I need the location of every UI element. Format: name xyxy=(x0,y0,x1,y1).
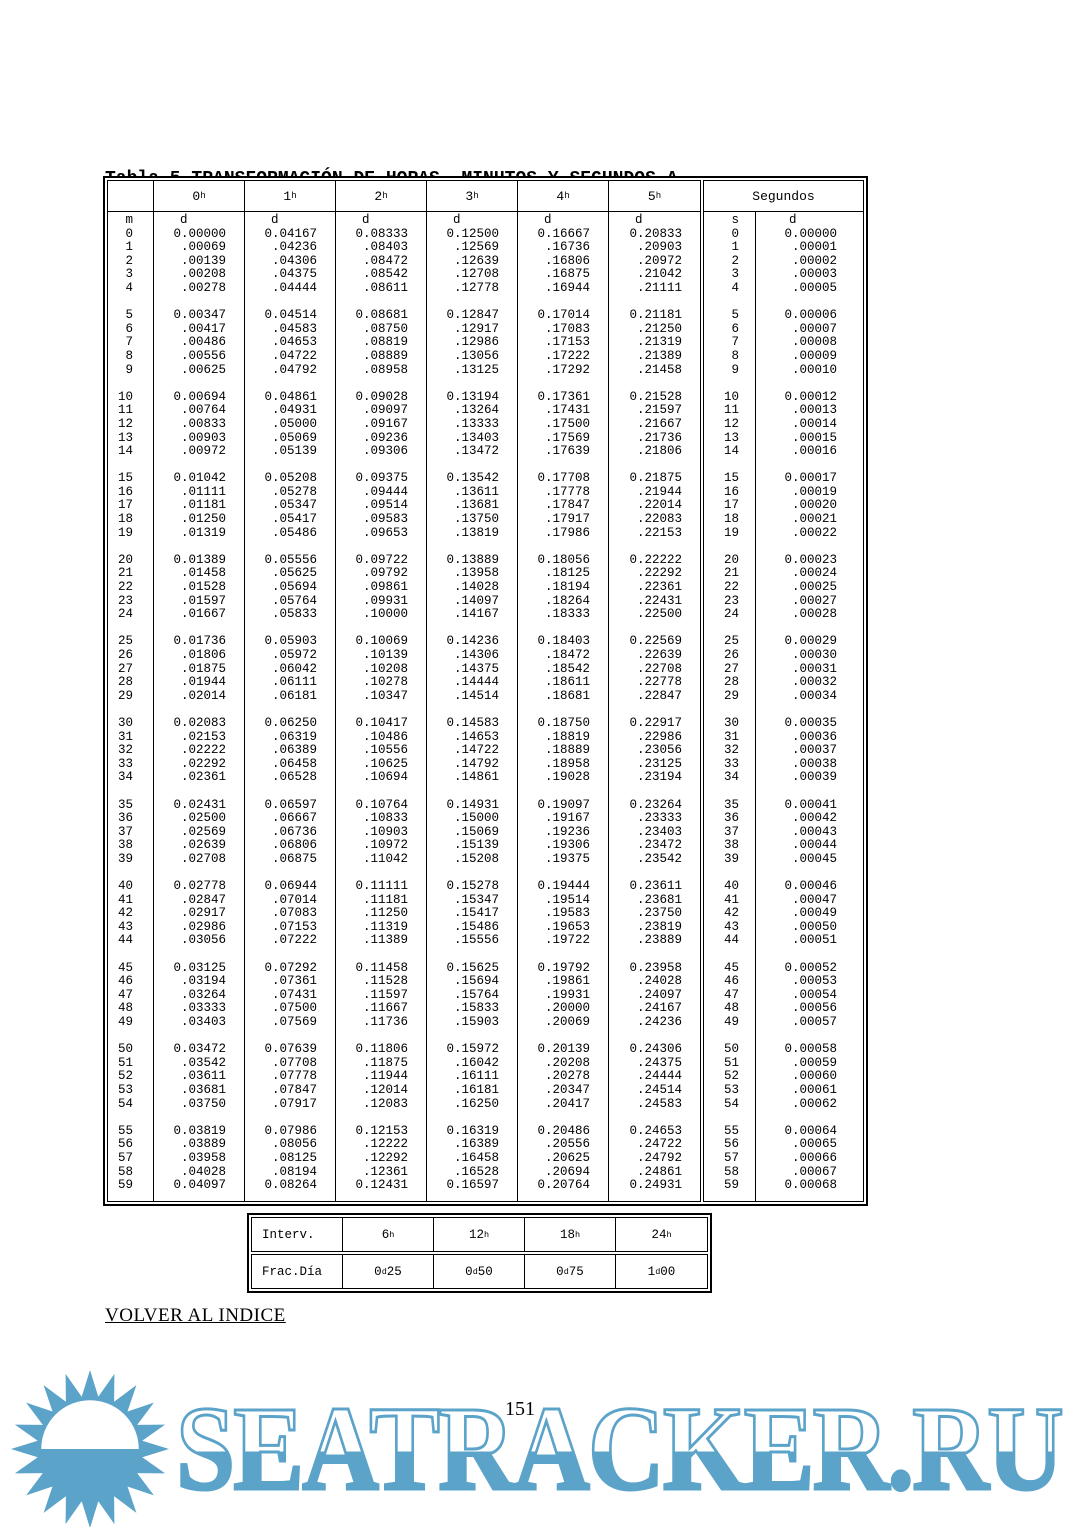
table-cell: .00060 xyxy=(756,1070,837,1084)
table-cell: .00032 xyxy=(756,676,837,690)
table-cell: .17847 xyxy=(518,499,590,513)
table-cell: .05972 xyxy=(245,649,317,663)
table-cell: .21458 xyxy=(609,364,682,378)
row-group: 0.15972.16042.16111.16181.16250 xyxy=(427,1043,499,1111)
row-group: 0.02778.02847.02917.02986.03056 xyxy=(154,880,226,948)
row-group: 5556575859 xyxy=(108,1125,133,1193)
row-group: 0.13194.13264.13333.13403.13472 xyxy=(427,391,499,459)
row-group: 0.14236.14306.14375.14444.14514 xyxy=(427,635,499,703)
table-cell: .18819 xyxy=(518,731,590,745)
table-cell: 29 xyxy=(108,690,133,704)
row-group: 0.18403.18472.18542.18611.18681 xyxy=(518,635,590,703)
table-cell: 0.08333 xyxy=(336,228,408,242)
row-group: 3536373839 xyxy=(704,799,739,867)
table-cell: 0.20833 xyxy=(609,228,682,242)
hour-column-1-subheader: d xyxy=(245,214,317,228)
table-cell: .07917 xyxy=(245,1098,317,1112)
row-group: 0.19444.19514.19583.19653.19722 xyxy=(518,880,590,948)
table-cell: .16389 xyxy=(427,1138,499,1152)
minutes-table: 0h 1h 2h 3h 4h 5h m012345678910111213141… xyxy=(107,180,701,1202)
row-group: 0.03472.03542.03611.03681.03750 xyxy=(154,1043,226,1111)
row-group: 5051525354 xyxy=(108,1043,133,1111)
table-cell: 27 xyxy=(704,663,739,677)
table-cell: .14444 xyxy=(427,676,499,690)
table-cell: 1 xyxy=(108,241,133,255)
table-cell: .07569 xyxy=(245,1016,317,1030)
table-cell: 45 xyxy=(704,962,739,976)
table-cell: .05000 xyxy=(245,418,317,432)
table-cell: .17431 xyxy=(518,404,590,418)
row-group: 0.11806.11875.11944.12014.12083 xyxy=(336,1043,408,1111)
table-cell: 57 xyxy=(704,1152,739,1166)
table-cell: .00031 xyxy=(756,663,837,677)
table-cell: .05139 xyxy=(245,445,317,459)
interval-value: 18h xyxy=(525,1218,616,1251)
table-cell: 4 xyxy=(108,282,133,296)
table-cell: 10 xyxy=(704,391,739,405)
table-cell: 0.01736 xyxy=(154,635,226,649)
table-cell: .01528 xyxy=(154,581,226,595)
row-group: 0.05903.05972.06042.06111.06181 xyxy=(245,635,317,703)
hour-label: 0 xyxy=(192,189,200,204)
table-cell: 53 xyxy=(108,1084,133,1098)
interval-value: 0d50 xyxy=(434,1255,525,1288)
table-cell: .13472 xyxy=(427,445,499,459)
table-cell: .00044 xyxy=(756,839,837,853)
hour-label: 1 xyxy=(283,189,291,204)
interval-value: 12h xyxy=(434,1218,525,1251)
table-cell: .11736 xyxy=(336,1016,408,1030)
table-cell: .08958 xyxy=(336,364,408,378)
table-cell: 0.15278 xyxy=(427,880,499,894)
table-cell: .03681 xyxy=(154,1084,226,1098)
table-cell: .00013 xyxy=(756,404,837,418)
row-group: 0.00041.00042.00043.00044.00045 xyxy=(756,799,837,867)
table-cell: .00208 xyxy=(154,268,226,282)
row-group: 0.24306.24375.24444.24514.24583 xyxy=(609,1043,682,1111)
table-cell: .06875 xyxy=(245,853,317,867)
hour-column-4: d0.16667.16736.16806.16875.169440.17014.… xyxy=(518,212,609,1201)
table-cell: 0.09375 xyxy=(336,472,408,486)
table-cell: 0.11806 xyxy=(336,1043,408,1057)
table-cell: 0.15972 xyxy=(427,1043,499,1057)
table-cell: 23 xyxy=(108,595,133,609)
table-cell: 0.11458 xyxy=(336,962,408,976)
table-cell: .07153 xyxy=(245,921,317,935)
table-cell: 0.00029 xyxy=(756,635,837,649)
row-group: 1516171819 xyxy=(108,472,133,540)
table-cell: .08194 xyxy=(245,1166,317,1180)
hour-label: 2 xyxy=(374,189,382,204)
table-cell: 0.07639 xyxy=(245,1043,317,1057)
table-cell: .21736 xyxy=(609,432,682,446)
row-group: 0.00000.00001.00002.00003.00005 xyxy=(756,228,837,296)
table-cell: .13125 xyxy=(427,364,499,378)
table-cell: .17569 xyxy=(518,432,590,446)
table-cell: 0.13889 xyxy=(427,554,499,568)
table-cell: 0.22917 xyxy=(609,717,682,731)
table-cell: .20347 xyxy=(518,1084,590,1098)
table-cell: .14167 xyxy=(427,608,499,622)
table-cell: .17986 xyxy=(518,527,590,541)
table-cell: 19 xyxy=(704,527,739,541)
table-cell: .21806 xyxy=(609,445,682,459)
row-group: 01234 xyxy=(704,228,739,296)
table-cell: .08819 xyxy=(336,336,408,350)
table-cell: .23056 xyxy=(609,744,682,758)
table-cell: 41 xyxy=(108,894,133,908)
table-cell: .00278 xyxy=(154,282,226,296)
table-cell: 44 xyxy=(704,934,739,948)
interval-value: 24h xyxy=(616,1218,707,1251)
table-cell: .23333 xyxy=(609,812,682,826)
table-cell: 0.21528 xyxy=(609,391,682,405)
interval-table-row: Interv.6h12h18h24h xyxy=(251,1217,708,1252)
table-cell: .00972 xyxy=(154,445,226,459)
table-cell: 28 xyxy=(704,676,739,690)
table-cell: 31 xyxy=(108,731,133,745)
row-group: 0.07292.07361.07431.07500.07569 xyxy=(245,962,317,1030)
table-cell: 56 xyxy=(704,1138,739,1152)
table-cell: .00015 xyxy=(756,432,837,446)
table-cell: .01181 xyxy=(154,499,226,513)
row-group: 0.00029.00030.00031.00032.00034 xyxy=(756,635,837,703)
table-cell: .14861 xyxy=(427,771,499,785)
table-cell: 2 xyxy=(704,255,739,269)
table-cell: 48 xyxy=(704,1002,739,1016)
table-cell: .00039 xyxy=(756,771,837,785)
table-cell: .07222 xyxy=(245,934,317,948)
table-cell: .16181 xyxy=(427,1084,499,1098)
table-cell: .22153 xyxy=(609,527,682,541)
table-cell: .19514 xyxy=(518,894,590,908)
row-group: 0.23958.24028.24097.24167.24236 xyxy=(609,962,682,1030)
table-cell: .12014 xyxy=(336,1084,408,1098)
table-cell: .03542 xyxy=(154,1057,226,1071)
table-cell: .03889 xyxy=(154,1138,226,1152)
table-cell: .13403 xyxy=(427,432,499,446)
table-cell: .00003 xyxy=(756,268,837,282)
table-cell: 0.12153 xyxy=(336,1125,408,1139)
table-cell: .00061 xyxy=(756,1084,837,1098)
table-cell: 0.10764 xyxy=(336,799,408,813)
table-cell: .00002 xyxy=(756,255,837,269)
hour-column-3: d0.12500.12569.12639.12708.127780.12847.… xyxy=(427,212,518,1201)
interval-table-body: Interv.6h12h18h24hFrac.Día0d250d500d751d… xyxy=(251,1217,708,1289)
table-cell: 25 xyxy=(108,635,133,649)
row-group: 0.23264.23333.23403.23472.23542 xyxy=(609,799,682,867)
table-cell: 24 xyxy=(108,608,133,622)
row-group: 0.03125.03194.03264.03333.03403 xyxy=(154,962,226,1030)
row-group: 0.15278.15347.15417.15486.15556 xyxy=(427,880,499,948)
table-cell: .15347 xyxy=(427,894,499,908)
table-cell: .02292 xyxy=(154,758,226,772)
seconds-header-row: Segundos xyxy=(704,181,863,212)
table-cell: .00036 xyxy=(756,731,837,745)
table-cell: .07014 xyxy=(245,894,317,908)
row-group: 2021222324 xyxy=(704,554,739,622)
table-cell: .20069 xyxy=(518,1016,590,1030)
table-cell: 0.21875 xyxy=(609,472,682,486)
table-cell: .00008 xyxy=(756,336,837,350)
table-cell: 0.12431 xyxy=(336,1179,408,1193)
table-cell: .14375 xyxy=(427,663,499,677)
table-cell: .02639 xyxy=(154,839,226,853)
table-cell: .00057 xyxy=(756,1016,837,1030)
seconds-body: s012345678910111213141516171819202122232… xyxy=(704,212,863,1201)
table-cell: .08403 xyxy=(336,241,408,255)
table-cell: .00764 xyxy=(154,404,226,418)
table-cell: .11042 xyxy=(336,853,408,867)
table-cell: .01875 xyxy=(154,663,226,677)
table-cell: .04792 xyxy=(245,364,317,378)
table-cell: 13 xyxy=(108,432,133,446)
table-cell: .22639 xyxy=(609,649,682,663)
conversion-table: 0h 1h 2h 3h 4h 5h m012345678910111213141… xyxy=(103,176,868,1206)
table-cell: .05486 xyxy=(245,527,317,541)
table-cell: 0.02431 xyxy=(154,799,226,813)
table-cell: 0.15625 xyxy=(427,962,499,976)
table-cell: 0.18750 xyxy=(518,717,590,731)
minutes-header-spacer xyxy=(108,181,154,211)
volver-al-indice-link[interactable]: VOLVER AL INDICE xyxy=(105,1305,286,1327)
table-cell: .21944 xyxy=(609,486,682,500)
table-cell: .09444 xyxy=(336,486,408,500)
table-cell: .05764 xyxy=(245,595,317,609)
table-cell: 0.20764 xyxy=(518,1179,590,1193)
row-group: 0.20833.20903.20972.21042.21111 xyxy=(609,228,682,296)
table-cell: 0.00347 xyxy=(154,309,226,323)
table-cell: 34 xyxy=(704,771,739,785)
table-cell: .03264 xyxy=(154,989,226,1003)
row-group: 0.09375.09444.09514.09583.09653 xyxy=(336,472,408,540)
seconds-frac-column: d0.00000.00001.00002.00003.000050.00006.… xyxy=(756,212,863,1201)
hour-header-5: 5h xyxy=(609,181,700,211)
row-group: 0.00006.00007.00008.00009.00010 xyxy=(756,309,837,377)
row-group: 0.22917.22986.23056.23125.23194 xyxy=(609,717,682,785)
table-cell: .23681 xyxy=(609,894,682,908)
table-cell: .00014 xyxy=(756,418,837,432)
table-cell: 30 xyxy=(108,717,133,731)
row-group: 3536373839 xyxy=(108,799,133,867)
table-cell: .00069 xyxy=(154,241,226,255)
table-cell: .06389 xyxy=(245,744,317,758)
row-group: 0.06944.07014.07083.07153.07222 xyxy=(245,880,317,948)
table-cell: 0.00064 xyxy=(756,1125,837,1139)
table-cell: .22778 xyxy=(609,676,682,690)
table-cell: 0.23264 xyxy=(609,799,682,813)
table-cell: .17222 xyxy=(518,350,590,364)
table-cell: .19653 xyxy=(518,921,590,935)
table-cell: .00022 xyxy=(756,527,837,541)
row-group: 0.19097.19167.19236.19306.19375 xyxy=(518,799,590,867)
table-cell: 0.16667 xyxy=(518,228,590,242)
table-cell: .15069 xyxy=(427,826,499,840)
row-group: 0.12500.12569.12639.12708.12778 xyxy=(427,228,499,296)
table-cell: 0.19792 xyxy=(518,962,590,976)
table-cell: 2 xyxy=(108,255,133,269)
table-cell: 42 xyxy=(108,907,133,921)
hour-column-0-subheader: d xyxy=(154,214,226,228)
hour-column-1: d0.04167.04236.04306.04375.044440.04514.… xyxy=(245,212,336,1201)
table-cell: .02500 xyxy=(154,812,226,826)
row-group: 0.07986.08056.08125.081940.08264 xyxy=(245,1125,317,1193)
table-cell: .00030 xyxy=(756,649,837,663)
table-cell: 54 xyxy=(108,1098,133,1112)
table-cell: 7 xyxy=(108,336,133,350)
row-group: 0.18056.18125.18194.18264.18333 xyxy=(518,554,590,622)
row-group: 0.23611.23681.23750.23819.23889 xyxy=(609,880,682,948)
table-cell: .21111 xyxy=(609,282,682,296)
table-cell: .00065 xyxy=(756,1138,837,1152)
table-cell: .19375 xyxy=(518,853,590,867)
table-cell: 0.06597 xyxy=(245,799,317,813)
table-cell: .14514 xyxy=(427,690,499,704)
seconds-table: Segundos s012345678910111213141516171819… xyxy=(703,180,864,1202)
hour-header-1: 1h xyxy=(245,181,336,211)
table-cell: 12 xyxy=(704,418,739,432)
table-cell: .13958 xyxy=(427,567,499,581)
table-cell: .11597 xyxy=(336,989,408,1003)
row-group: 3031323334 xyxy=(704,717,739,785)
table-cell: 38 xyxy=(108,839,133,853)
table-cell: 0.20486 xyxy=(518,1125,590,1139)
table-cell: .00833 xyxy=(154,418,226,432)
table-cell: .18333 xyxy=(518,608,590,622)
table-cell: .12083 xyxy=(336,1098,408,1112)
table-cell: .14028 xyxy=(427,581,499,595)
table-cell: .21389 xyxy=(609,350,682,364)
table-cell: .12917 xyxy=(427,323,499,337)
table-cell: .23125 xyxy=(609,758,682,772)
table-cell: 29 xyxy=(704,690,739,704)
table-cell: .00010 xyxy=(756,364,837,378)
table-cell: 0.17708 xyxy=(518,472,590,486)
table-cell: .08750 xyxy=(336,323,408,337)
table-cell: 0.05903 xyxy=(245,635,317,649)
table-cell: 0.22569 xyxy=(609,635,682,649)
table-cell: .12292 xyxy=(336,1152,408,1166)
table-cell: .00028 xyxy=(756,608,837,622)
table-cell: 0.09028 xyxy=(336,391,408,405)
seconds-column: s012345678910111213141516171819202122232… xyxy=(704,212,756,1201)
interval-value: 0d75 xyxy=(525,1255,616,1288)
table-cell: .00034 xyxy=(756,690,837,704)
table-cell: .21042 xyxy=(609,268,682,282)
table-cell: 20 xyxy=(704,554,739,568)
table-cell: 16 xyxy=(108,486,133,500)
table-cell: 0.12847 xyxy=(427,309,499,323)
table-cell: 0.11111 xyxy=(336,880,408,894)
table-cell: .17292 xyxy=(518,364,590,378)
table-cell: 0.07292 xyxy=(245,962,317,976)
table-cell: .09306 xyxy=(336,445,408,459)
table-cell: .11875 xyxy=(336,1057,408,1071)
row-group: 0.14931.15000.15069.15139.15208 xyxy=(427,799,499,867)
table-cell: .03056 xyxy=(154,934,226,948)
table-cell: .03611 xyxy=(154,1070,226,1084)
table-cell: .08889 xyxy=(336,350,408,364)
interval-row-label: Frac.Día xyxy=(252,1255,343,1288)
row-group: 0.20486.20556.20625.206940.20764 xyxy=(518,1125,590,1193)
table-cell: .02708 xyxy=(154,853,226,867)
table-cell: .02569 xyxy=(154,826,226,840)
table-cell: .03333 xyxy=(154,1002,226,1016)
hour-column-4-subheader: d xyxy=(518,214,590,228)
table-cell: 47 xyxy=(108,989,133,1003)
table-cell: .00556 xyxy=(154,350,226,364)
table-cell: 11 xyxy=(704,404,739,418)
table-cell: .16458 xyxy=(427,1152,499,1166)
hour-label: 4 xyxy=(556,189,564,204)
table-cell: 0.02083 xyxy=(154,717,226,731)
table-cell: .00007 xyxy=(756,323,837,337)
table-cell: .23750 xyxy=(609,907,682,921)
table-cell: .04444 xyxy=(245,282,317,296)
table-cell: .19167 xyxy=(518,812,590,826)
interval-value: 6h xyxy=(343,1218,434,1251)
hour-column-5-subheader: d xyxy=(609,214,682,228)
table-cell: .16806 xyxy=(518,255,590,269)
table-cell: 0.00006 xyxy=(756,309,837,323)
table-cell: 4 xyxy=(704,282,739,296)
interval-table-row: Frac.Día0d250d500d751d00 xyxy=(251,1254,708,1289)
table-cell: .08125 xyxy=(245,1152,317,1166)
table-cell: 0.04514 xyxy=(245,309,317,323)
row-group: 0.17014.17083.17153.17222.17292 xyxy=(518,309,590,377)
row-group: 0.12847.12917.12986.13056.13125 xyxy=(427,309,499,377)
row-group: 4546474849 xyxy=(108,962,133,1030)
table-cell: 45 xyxy=(108,962,133,976)
table-cell: .18611 xyxy=(518,676,590,690)
row-group: 0.20139.20208.20278.20347.20417 xyxy=(518,1043,590,1111)
table-cell: 0 xyxy=(704,228,739,242)
row-group: 56789 xyxy=(108,309,133,377)
table-cell: .16736 xyxy=(518,241,590,255)
table-cell: 50 xyxy=(108,1043,133,1057)
row-group: 0.00046.00047.00049.00050.00051 xyxy=(756,880,837,948)
table-cell: .06528 xyxy=(245,771,317,785)
table-cell: 51 xyxy=(108,1057,133,1071)
row-group: 0.04167.04236.04306.04375.04444 xyxy=(245,228,317,296)
table-cell: .19861 xyxy=(518,975,590,989)
table-cell: .05278 xyxy=(245,486,317,500)
table-cell: .20000 xyxy=(518,1002,590,1016)
table-cell: .23403 xyxy=(609,826,682,840)
row-group: 0.10764.10833.10903.10972.11042 xyxy=(336,799,408,867)
table-cell: 58 xyxy=(108,1166,133,1180)
row-group: 0.08333.08403.08472.08542.08611 xyxy=(336,228,408,296)
table-cell: .01597 xyxy=(154,595,226,609)
table-cell: .01250 xyxy=(154,513,226,527)
table-cell: 21 xyxy=(704,567,739,581)
table-cell: .00059 xyxy=(756,1057,837,1071)
row-group: 0.00035.00036.00037.00038.00039 xyxy=(756,717,837,785)
row-group: 0.22569.22639.22708.22778.22847 xyxy=(609,635,682,703)
table-cell: .00062 xyxy=(756,1098,837,1112)
row-group: 4041424344 xyxy=(704,880,739,948)
table-cell: 0.04167 xyxy=(245,228,317,242)
row-group: 0.22222.22292.22361.22431.22500 xyxy=(609,554,682,622)
table-cell: 0.00000 xyxy=(756,228,837,242)
row-group: 0.00017.00019.00020.00021.00022 xyxy=(756,472,837,540)
row-group: 0.14583.14653.14722.14792.14861 xyxy=(427,717,499,785)
row-group: 0.19792.19861.19931.20000.20069 xyxy=(518,962,590,1030)
table-cell: 17 xyxy=(108,499,133,513)
table-cell: .12569 xyxy=(427,241,499,255)
table-cell: .00486 xyxy=(154,336,226,350)
table-cell: .09167 xyxy=(336,418,408,432)
